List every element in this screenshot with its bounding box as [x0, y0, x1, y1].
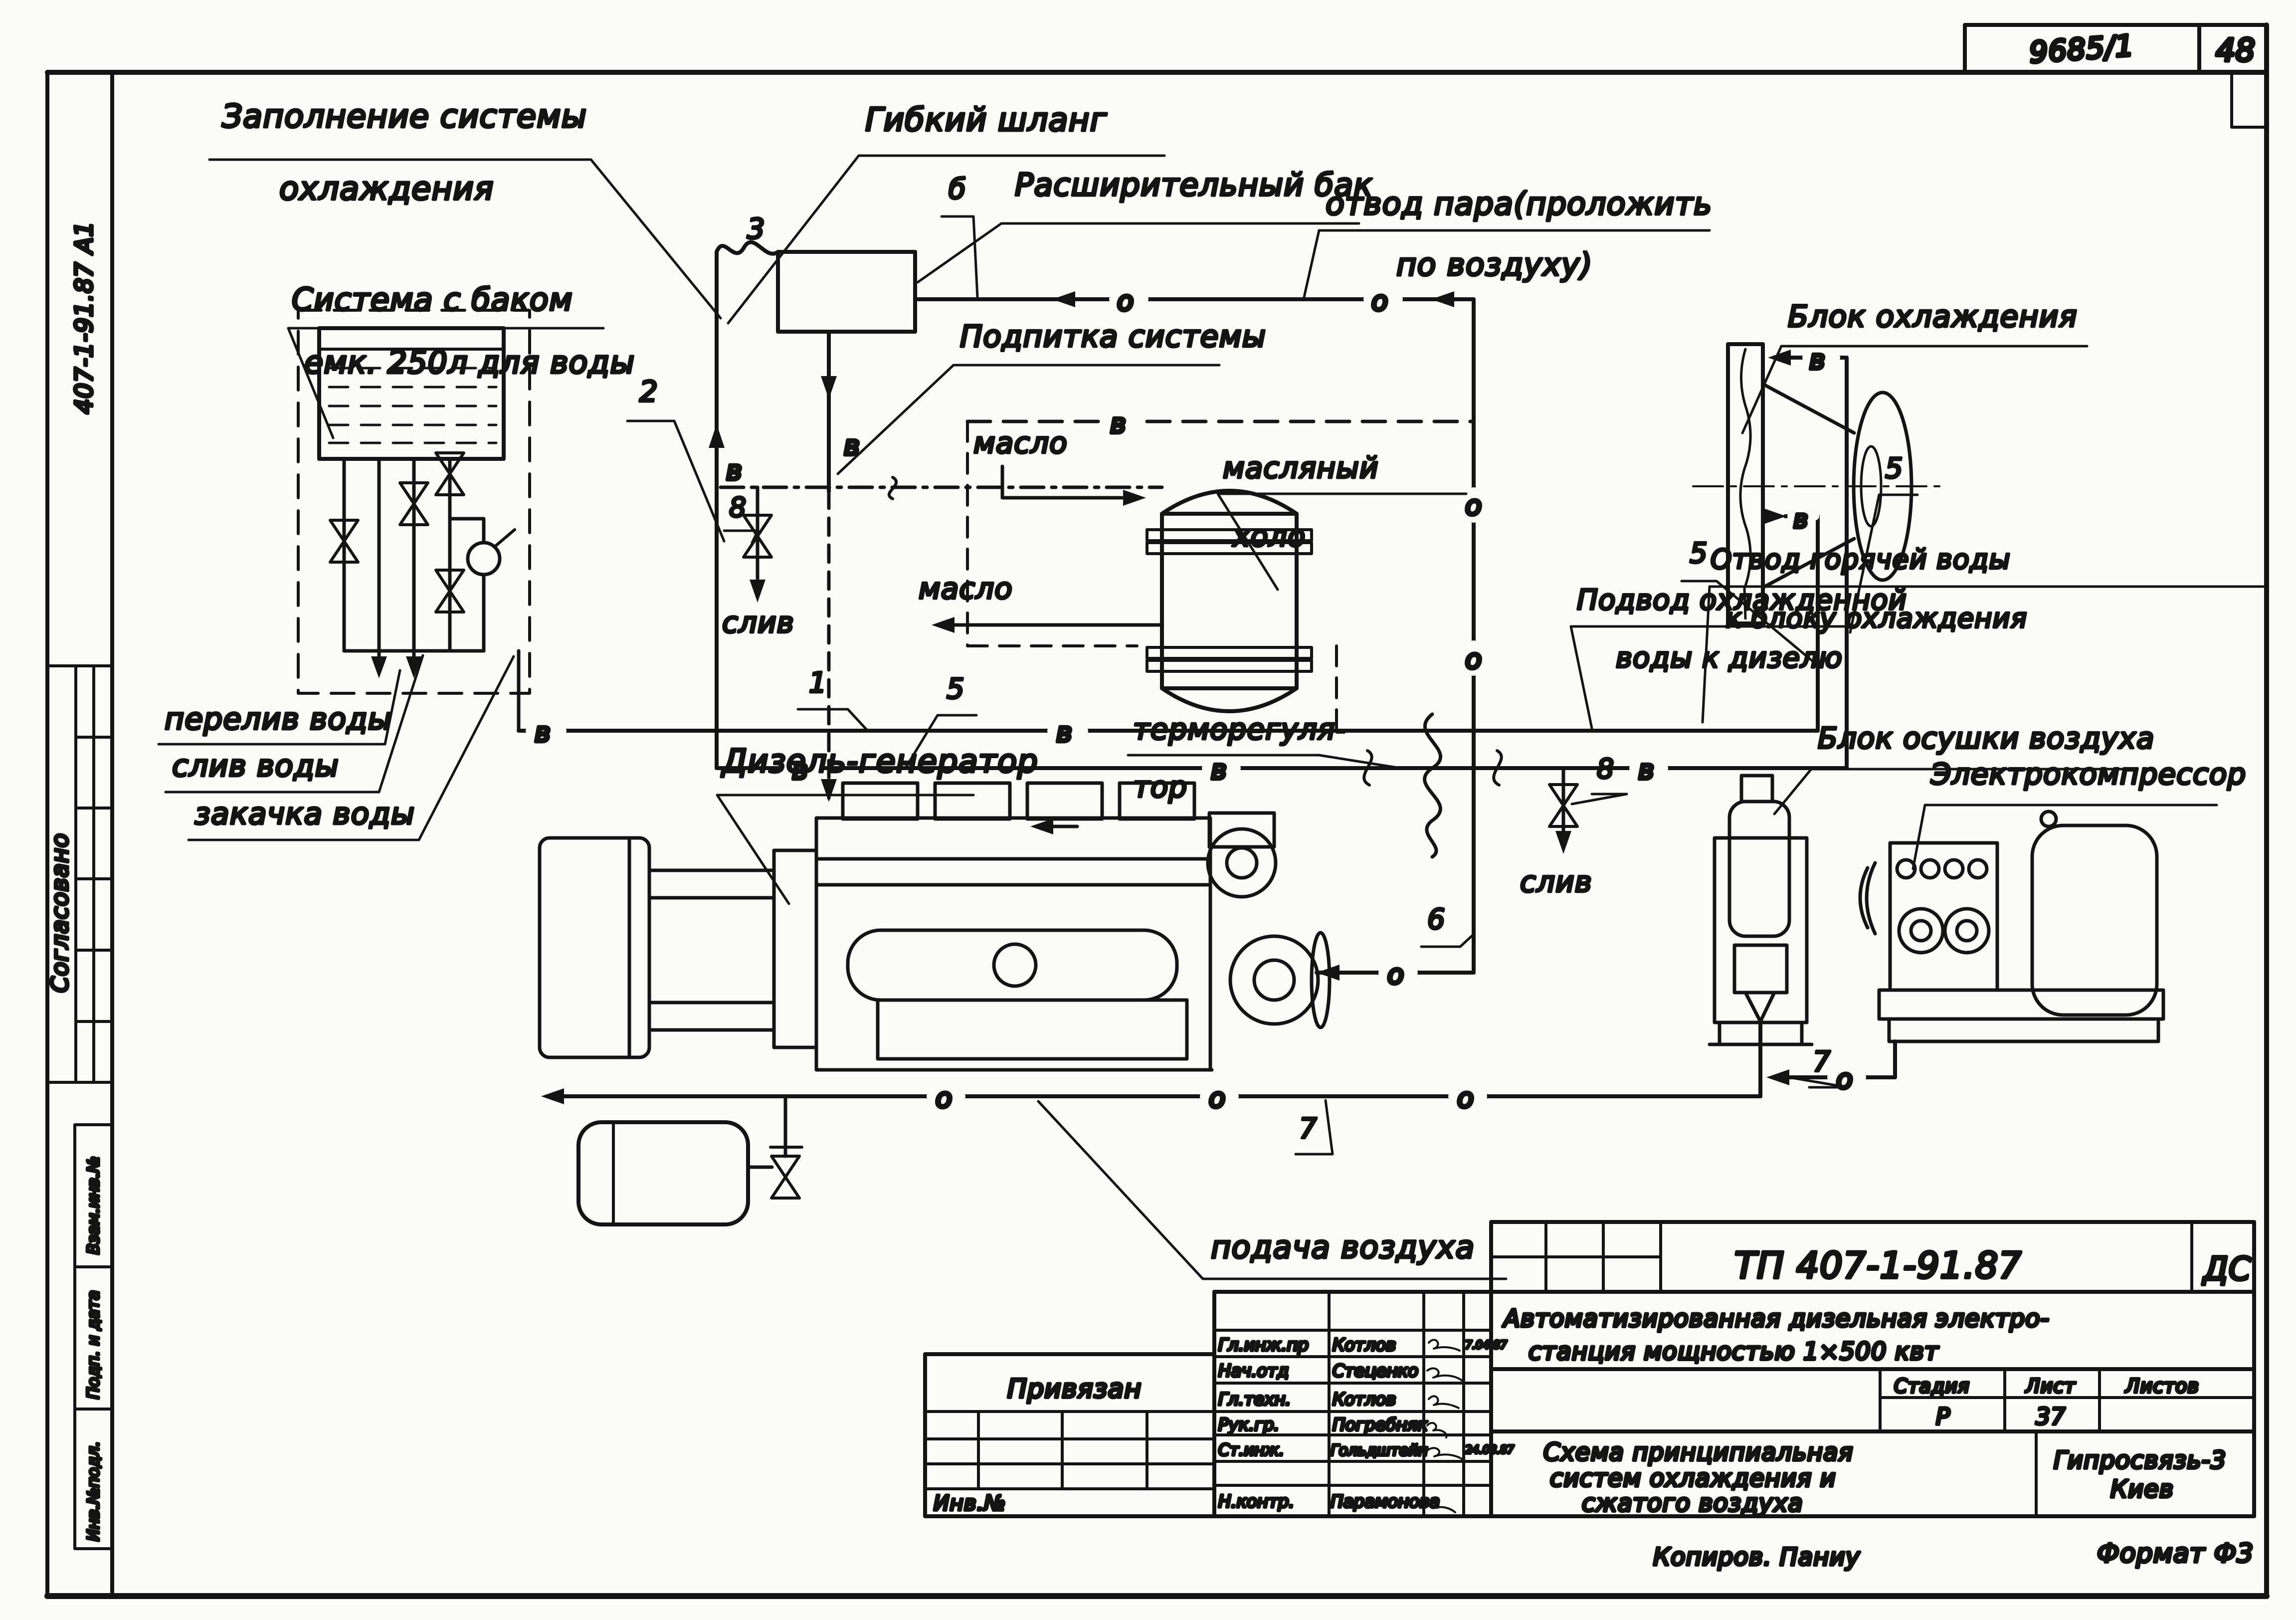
media-letter: о [1117, 285, 1134, 317]
sig-name: Гольдштейн [1331, 1442, 1428, 1459]
sig-role: Рук.гр. [1218, 1415, 1279, 1435]
margin-code: 407-1-91.87 А1 [70, 221, 98, 414]
label-compressor: Электрокомпрессор [1930, 757, 2246, 791]
expansion-tank [778, 252, 915, 332]
sig-role: Гл.техн. [1218, 1390, 1291, 1410]
media-letter: в [1211, 754, 1227, 786]
media-letter: в [535, 717, 551, 748]
media-letter: в [1638, 754, 1654, 786]
sig-role: Н.контр. [1218, 1492, 1294, 1512]
media-letter: в [1110, 408, 1126, 439]
media-letter: о [1209, 1082, 1225, 1114]
sheet-header: Лист [2025, 1375, 2076, 1397]
label-flexible-hose: Гибкий шланг [865, 102, 1107, 139]
pos-8: 8 [729, 492, 746, 523]
sheet-number: 48 [2216, 32, 2255, 68]
diesel-generator-figure [540, 783, 1330, 1070]
org-name: Гипросвязь-3 [2054, 1446, 2226, 1474]
arrow-left-icon [541, 1088, 564, 1104]
media-letter: в [1793, 505, 1808, 534]
margin-agreed: Согласовано [46, 833, 73, 993]
project-code: ТП 407-1-91.87 [1734, 1244, 2022, 1286]
project-title-1: Автоматизированная дизельная электро- [1502, 1305, 2050, 1333]
media-letter: о [1465, 643, 1482, 675]
drawing-name-1: Схема принципиальная [1543, 1438, 1853, 1466]
margin-row-vzam: Взам.инв.№ [84, 1156, 103, 1254]
pos-8: 8 [1597, 753, 1614, 785]
label-fill-pump: закачка воды [194, 797, 415, 831]
label-tank-system: Система с баком [292, 281, 573, 318]
compressed-air-line [541, 1088, 1760, 1224]
label-drain-mid: слив [1520, 865, 1592, 899]
stage-header: Стадия [1894, 1375, 1970, 1397]
media-letter: в [1809, 344, 1825, 376]
media-letter: о [1457, 1082, 1474, 1114]
compressor-receiver [2032, 825, 2157, 1015]
sig-date: 7.04.87 [1465, 1339, 1507, 1352]
drawing-sheet: 9685/1 48 407-1-91.87 А1 Согласовано Вза… [0, 0, 2296, 1620]
copier-note: Копиров. Паниу [1653, 1543, 1860, 1571]
label-drain-tank: слив воды [172, 749, 339, 784]
line-letter-gaps [530, 299, 1862, 1096]
sheet-value: 37 [2036, 1403, 2066, 1430]
pos-7: 7 [1299, 1113, 1317, 1145]
label-air-dryer: Блок осушки воздуха [1818, 721, 2155, 755]
drawing-name-2: систем охлаждения и [1550, 1464, 1836, 1492]
stage-value: Р [1936, 1403, 1950, 1430]
label-oil-cooler: масляный [1223, 451, 1379, 485]
media-letter: о [1836, 1063, 1853, 1095]
label-oil-out: масло [919, 572, 1013, 606]
arrow-left-icon [1052, 291, 1075, 307]
label-steam-vent-2: по воздуху) [1396, 246, 1593, 283]
arrow-left-icon [1431, 291, 1454, 307]
left-margin: 407-1-91.87 А1 Согласовано Взам.инв.№ По… [46, 221, 112, 1549]
label-drain-left: слив [722, 606, 794, 639]
label-thermoregulator-2: тор [1133, 770, 1187, 804]
media-letter: в [726, 455, 742, 486]
inv-label: Инв.№ [934, 1491, 1006, 1515]
media-letter: о [1371, 285, 1388, 317]
margin-row-podp: Подп. и дата [84, 1290, 103, 1399]
label-tank-capacity: емк. 250л для воды [304, 344, 635, 381]
arrow-down-icon [1555, 831, 1571, 854]
arrow-left-icon [1030, 818, 1053, 834]
arrow-down-icon [821, 376, 837, 399]
pos-5: 5 [1690, 537, 1708, 570]
oil-inlet-line [1002, 466, 1122, 498]
sig-name: Парамонова [1331, 1492, 1440, 1512]
valve-icon [771, 1156, 799, 1198]
label-oil-in: масло [973, 426, 1068, 460]
arrow-left-icon [932, 617, 955, 633]
doc-number: 9685/1 [2028, 28, 2135, 69]
label-hot-water-2: к блоку охлаждения [1725, 603, 2027, 634]
drain-branch-left [744, 487, 771, 603]
flow-letters: о о о о о о о о о в в в в в в в в в в [535, 285, 1853, 1114]
pos-5: 5 [947, 673, 964, 705]
sig-role: Ст.инж. [1218, 1440, 1284, 1459]
media-letter: в [1056, 717, 1072, 748]
label-diesel: Дизель-генератор [721, 743, 1038, 780]
label-hot-water: Отвод горячей воды [1711, 544, 2011, 575]
sig-role: Гл.инж.пр [1218, 1335, 1309, 1355]
bound-label: Привязан [1007, 1374, 1142, 1404]
label-expansion-tank: Расширительный бак [1015, 167, 1373, 203]
label-fill-system-2: охлаждения [279, 171, 494, 207]
schematic-svg: 9685/1 48 407-1-91.87 А1 Согласовано Вза… [0, 0, 2296, 1620]
pos-5: 5 [1885, 452, 1903, 485]
label-fill-system: Заполнение системы [222, 98, 587, 135]
sig-name: Погребняк [1333, 1415, 1428, 1435]
label-overflow: перелив воды [165, 702, 392, 737]
media-letter: о [936, 1082, 952, 1114]
media-letter: о [1465, 490, 1482, 521]
title-block: Привязан Инв.№ Гл.инж.пр Котлов 7.04.87 … [925, 1222, 2254, 1571]
label-cooling-block: Блок охлаждения [1788, 299, 2078, 334]
pos-2: 2 [639, 375, 658, 408]
arrow-right-icon [1123, 490, 1146, 506]
project-title-2: станция мощностью 1×500 квт [1529, 1338, 1939, 1366]
drawing-name-3: сжатого воздуха [1582, 1489, 1803, 1517]
pos-1: 1 [809, 667, 827, 699]
arrow-up-icon [709, 424, 725, 448]
project-type: ДС [2202, 1251, 2252, 1288]
label-makeup: Подпитка системы [960, 319, 1266, 354]
sig-role: Нач.отд [1218, 1361, 1289, 1381]
arrow-right-icon [1763, 508, 1786, 524]
arrow-down-icon [371, 656, 387, 678]
org-city: Киев [2110, 1475, 2174, 1503]
arrow-down-icon [750, 580, 765, 603]
sheets-header: Листов [2124, 1375, 2199, 1397]
media-letter: о [1387, 959, 1404, 990]
label-steam-vent: отвод пара(проложить [1326, 186, 1712, 222]
pos-7: 7 [1813, 1046, 1831, 1078]
thermoregulator-figure [1425, 714, 1577, 857]
sig-name: Котлов [1333, 1335, 1396, 1355]
label-air-supply: подача воздуха [1211, 1229, 1475, 1265]
pos-6: 6 [1427, 903, 1445, 936]
arrow-down-icon [821, 779, 837, 802]
sig-name: Стеценко [1333, 1361, 1418, 1381]
label-thermoregulator: терморегуля- [1133, 712, 1346, 746]
air-receiver-bottle [578, 1122, 748, 1224]
format-note: Формат Ф3 [2097, 1539, 2254, 1569]
steam-vent-line [915, 291, 1474, 981]
pos-3: 3 [747, 213, 765, 245]
air-dryer-figure [1710, 776, 1812, 1096]
margin-row-inv: Инв.№подл. [84, 1441, 103, 1541]
sig-name: Котлов [1333, 1390, 1396, 1410]
pos-b: б [949, 173, 966, 205]
